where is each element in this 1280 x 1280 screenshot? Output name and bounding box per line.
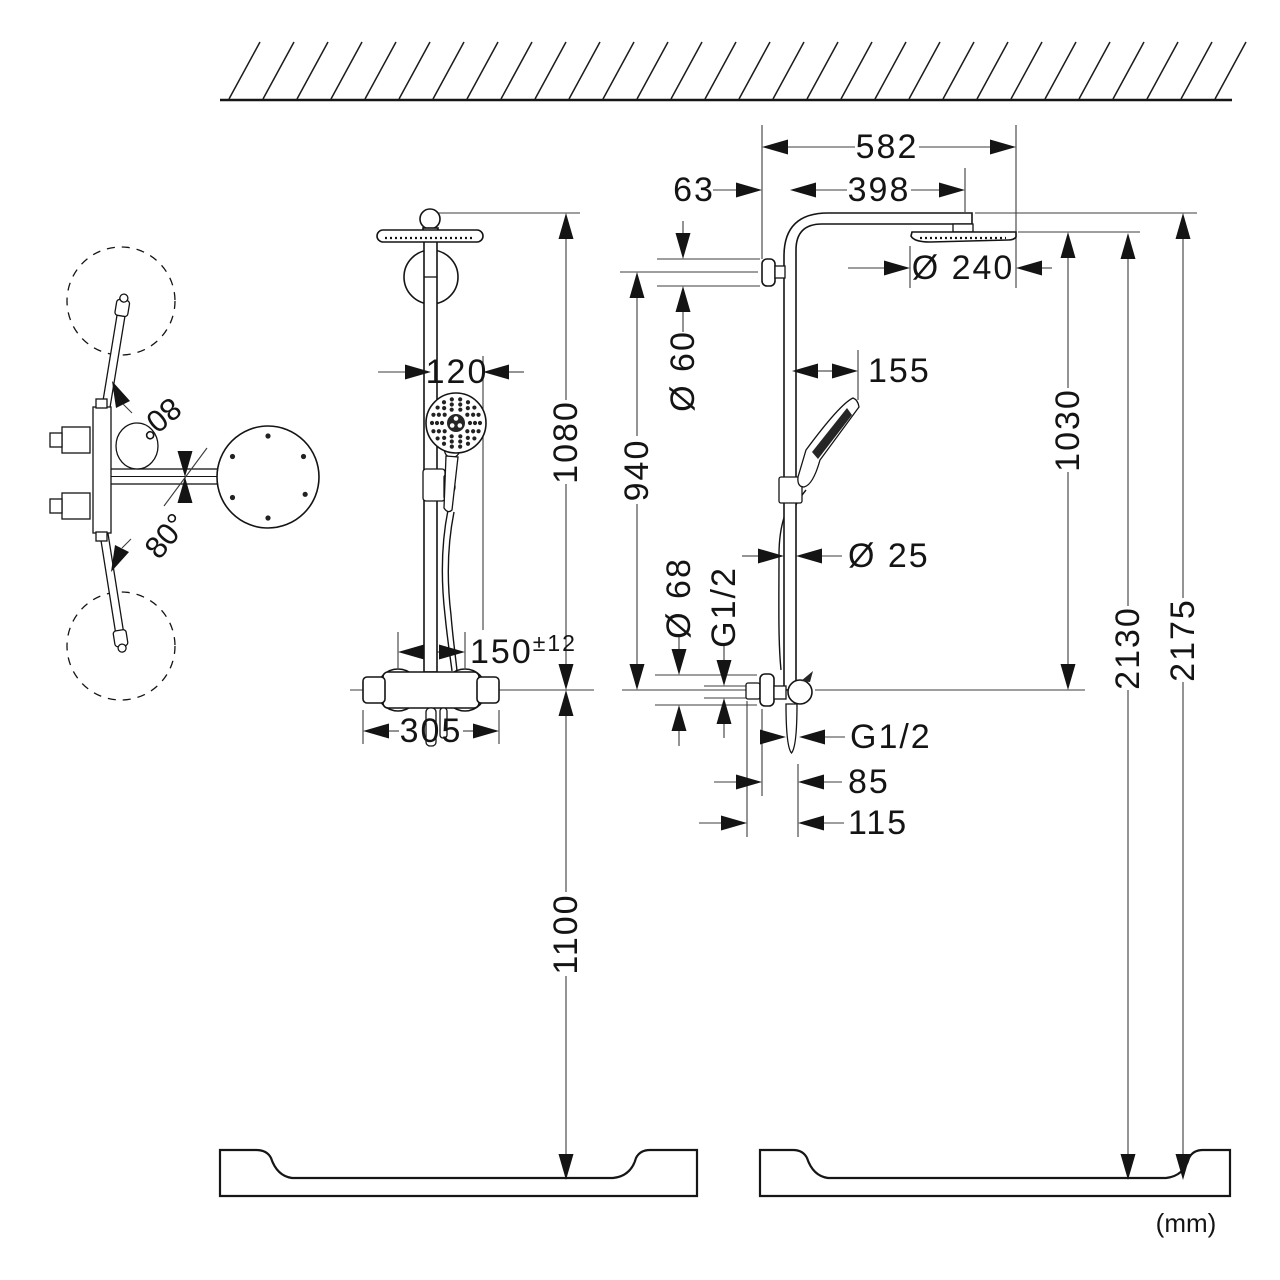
arm-head-joint <box>953 224 973 232</box>
dim-bar-diameter: Ø 25 <box>848 537 930 575</box>
dim-handshower-projection: 155 <box>868 352 931 390</box>
side-view: 582 63 398 Ø 240 Ø 60 940 155 Ø 25 Ø 68 … <box>618 128 1202 842</box>
union-lower-plan <box>62 493 90 519</box>
dim-wall-to-bar: 63 <box>673 171 715 209</box>
dim-outlet-offset: 85 <box>848 763 890 801</box>
swivel-angle-lower: 80° <box>138 507 195 565</box>
dim-arm-height: 2175 <box>1164 598 1202 682</box>
floor-trays <box>220 1150 1230 1196</box>
front-view: 120 1080 150±12 305 1100 <box>363 209 585 975</box>
ceiling <box>220 42 1246 100</box>
dim-head-height: 2130 <box>1109 606 1147 690</box>
handshower-holder <box>423 469 445 501</box>
union-upper-plan <box>62 427 90 453</box>
dim-bar-length: 940 <box>618 439 656 502</box>
valve-flange-side <box>760 674 774 706</box>
swivel-arrow-upper <box>112 381 130 408</box>
dim-head-diameter: Ø 240 <box>912 249 1015 287</box>
dim-head-to-valve: 1030 <box>1049 388 1087 472</box>
wall-union-flange <box>762 259 775 286</box>
valve-outlet-side <box>786 704 797 753</box>
overhead-shower-plan <box>217 426 319 528</box>
units-label: (mm) <box>1156 1208 1217 1238</box>
valve-knob-side <box>746 683 760 699</box>
handshower-handle <box>444 456 458 512</box>
ceiling-hatch <box>229 42 1246 99</box>
drawing-page: 80° 80° 120 1 <box>0 0 1280 1280</box>
valve-body-side <box>788 680 812 704</box>
shower-bar <box>424 238 437 672</box>
dim-union-diameter: Ø 60 <box>664 330 702 412</box>
thermostat-body <box>383 672 479 708</box>
volume-handle <box>477 677 499 703</box>
dim-arm-overall: 582 <box>856 128 919 166</box>
temperature-handle <box>363 677 385 703</box>
dim-valve-width: 305 <box>400 712 463 750</box>
dim-outlet-thread: G1/2 <box>850 718 932 756</box>
dim-arm-projection: 398 <box>848 171 911 209</box>
dim-inlet-thread: G1/2 <box>705 566 743 648</box>
shower-tray-left <box>220 1150 697 1196</box>
overhead-shower-front <box>377 230 483 242</box>
arm-ball-joint <box>420 209 440 229</box>
dim-bar-height: 1080 <box>547 400 585 484</box>
dim-hose-offset: 115 <box>848 804 908 842</box>
shower-installation-drawing: 80° 80° 120 1 <box>0 0 1280 1280</box>
top-view: 80° 80° <box>50 247 319 700</box>
dim-handshower-offset: 120 <box>426 353 489 391</box>
dim-valve-height: 1100 <box>547 893 585 974</box>
valve-plate-plan <box>93 407 111 533</box>
dim-escutcheon-diameter: Ø 68 <box>660 557 698 639</box>
shower-tray-right <box>760 1150 1230 1196</box>
swivel-arrow-lower <box>111 545 129 572</box>
